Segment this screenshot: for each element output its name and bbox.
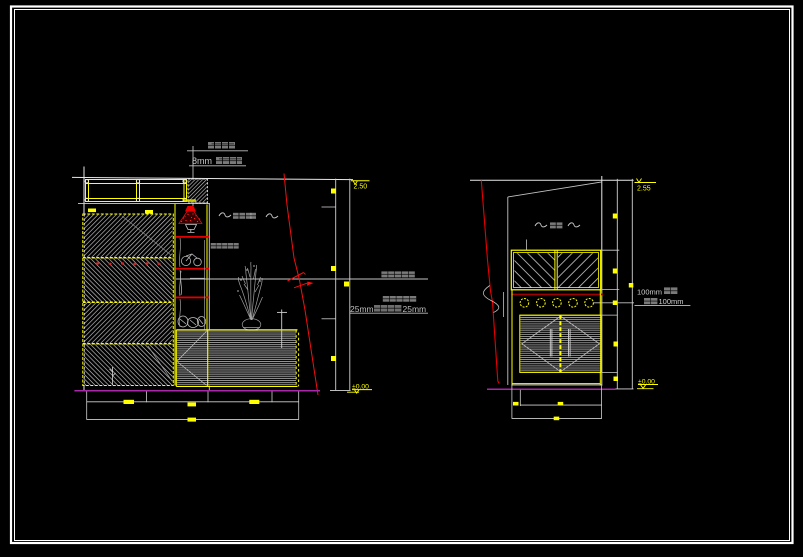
svg-text:25mm: 25mm <box>403 304 427 314</box>
svg-text:8mm: 8mm <box>192 156 212 166</box>
svg-text:100mm: 100mm <box>659 297 684 306</box>
svg-text:25mm: 25mm <box>350 304 374 314</box>
svg-text:100mm: 100mm <box>637 287 662 296</box>
svg-text:2.55: 2.55 <box>637 186 651 193</box>
svg-text:2.50: 2.50 <box>354 184 368 191</box>
